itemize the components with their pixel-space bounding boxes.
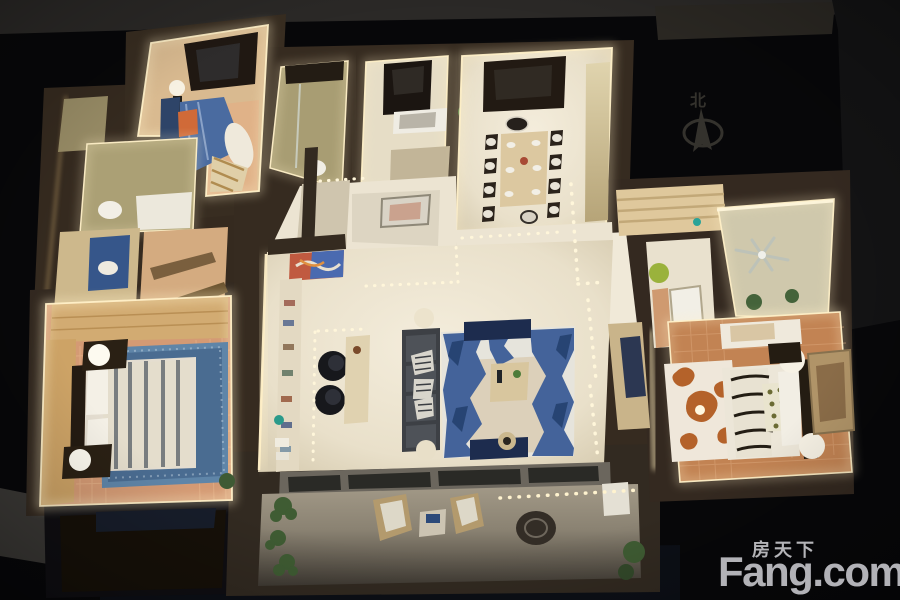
svg-text:Fang.com: Fang.com — [718, 548, 900, 595]
svg-text:北: 北 — [690, 92, 706, 110]
